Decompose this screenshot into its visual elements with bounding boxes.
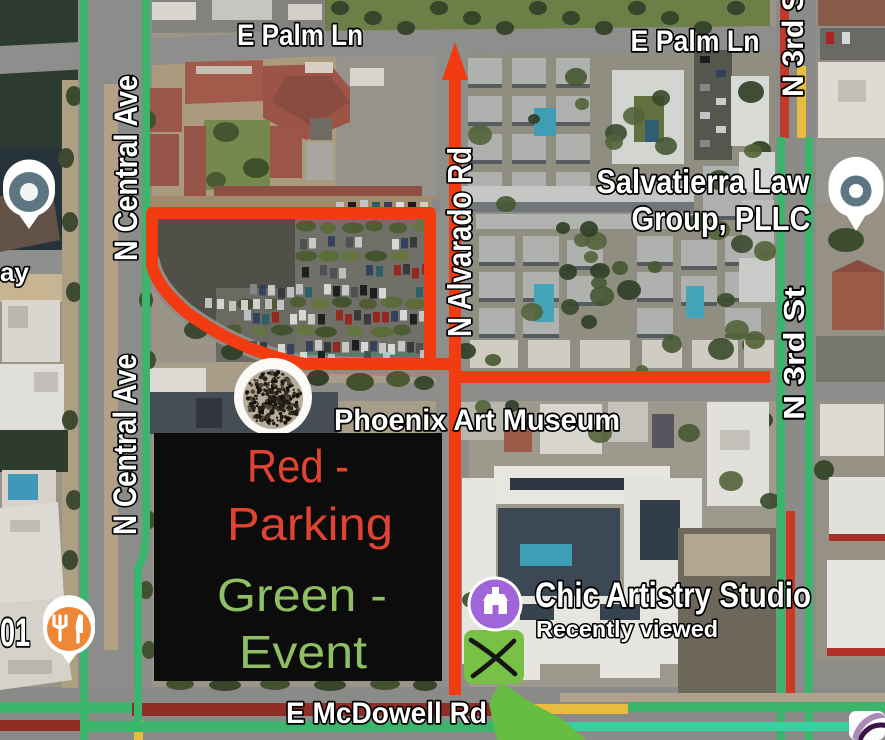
- svg-text:Recently viewed: Recently viewed: [536, 616, 718, 642]
- svg-text:N 3rd St: N 3rd St: [779, 287, 811, 420]
- svg-text:Event: Event: [239, 626, 367, 678]
- svg-text:N Central Ave: N Central Ave: [108, 75, 144, 261]
- svg-text:Phoenix Art Museum: Phoenix Art Museum: [334, 404, 620, 437]
- svg-text:E Palm Ln: E Palm Ln: [631, 25, 760, 58]
- svg-text:N Central Ave: N Central Ave: [107, 354, 143, 535]
- svg-text:Chic Artistry Studio: Chic Artistry Studio: [535, 576, 811, 615]
- svg-text:Group, PLLC: Group, PLLC: [632, 200, 811, 237]
- svg-text:N 3rd St: N 3rd St: [777, 0, 810, 97]
- svg-text:Salvatierra Law: Salvatierra Law: [597, 163, 810, 200]
- svg-text:01: 01: [0, 611, 30, 655]
- svg-text:ay: ay: [0, 257, 29, 287]
- svg-text:N Alvarado Rd: N Alvarado Rd: [441, 147, 478, 337]
- svg-text:E Palm Ln: E Palm Ln: [237, 19, 363, 52]
- svg-text:E McDowell Rd: E McDowell Rd: [286, 697, 487, 730]
- svg-text:Parking: Parking: [227, 498, 393, 550]
- svg-text:Green -: Green -: [217, 569, 387, 621]
- svg-text:Red -: Red -: [247, 440, 349, 492]
